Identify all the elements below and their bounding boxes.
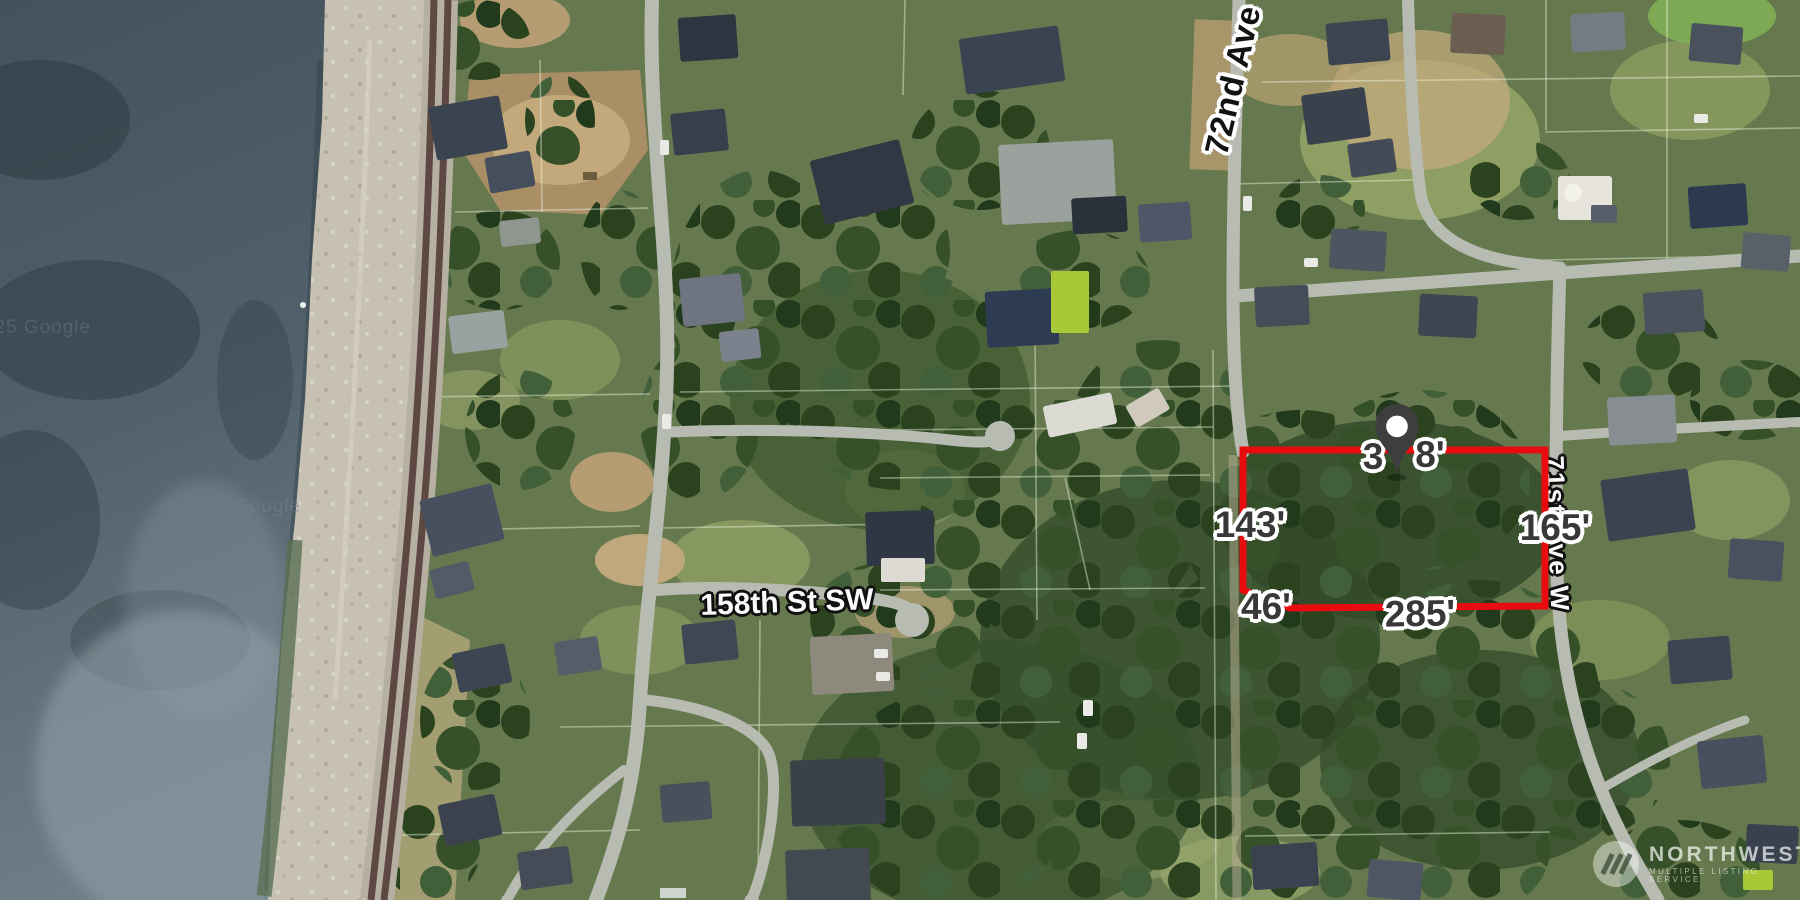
satellite-map-canvas[interactable]: © 2025 Google © 2025 Google 72nd Ave 158…	[0, 0, 1800, 900]
nwmls-logo-title: NORTHWEST	[1649, 844, 1800, 865]
nwmls-logo-subtitle: MULTIPLE LISTING SERVICE	[1649, 868, 1800, 884]
location-pin-icon[interactable]	[1371, 401, 1423, 483]
street-label-158th-st-sw: 158th St SW	[700, 583, 874, 623]
dimension-label-bottom-small: 46'	[1241, 586, 1291, 628]
google-watermark: © 2025 Google	[160, 496, 301, 518]
nwmls-logo: NORTHWEST MULTIPLE LISTING SERVICE	[1593, 841, 1800, 887]
dimension-label-left: 143'	[1215, 504, 1286, 546]
nwmls-logo-icon	[1593, 841, 1639, 887]
dimension-label-right: 165'	[1520, 507, 1591, 549]
google-watermark-edge: © 2025 Google	[0, 317, 91, 339]
dimension-label-bottom: 285'	[1384, 592, 1455, 635]
satellite-imagery	[0, 0, 1800, 900]
